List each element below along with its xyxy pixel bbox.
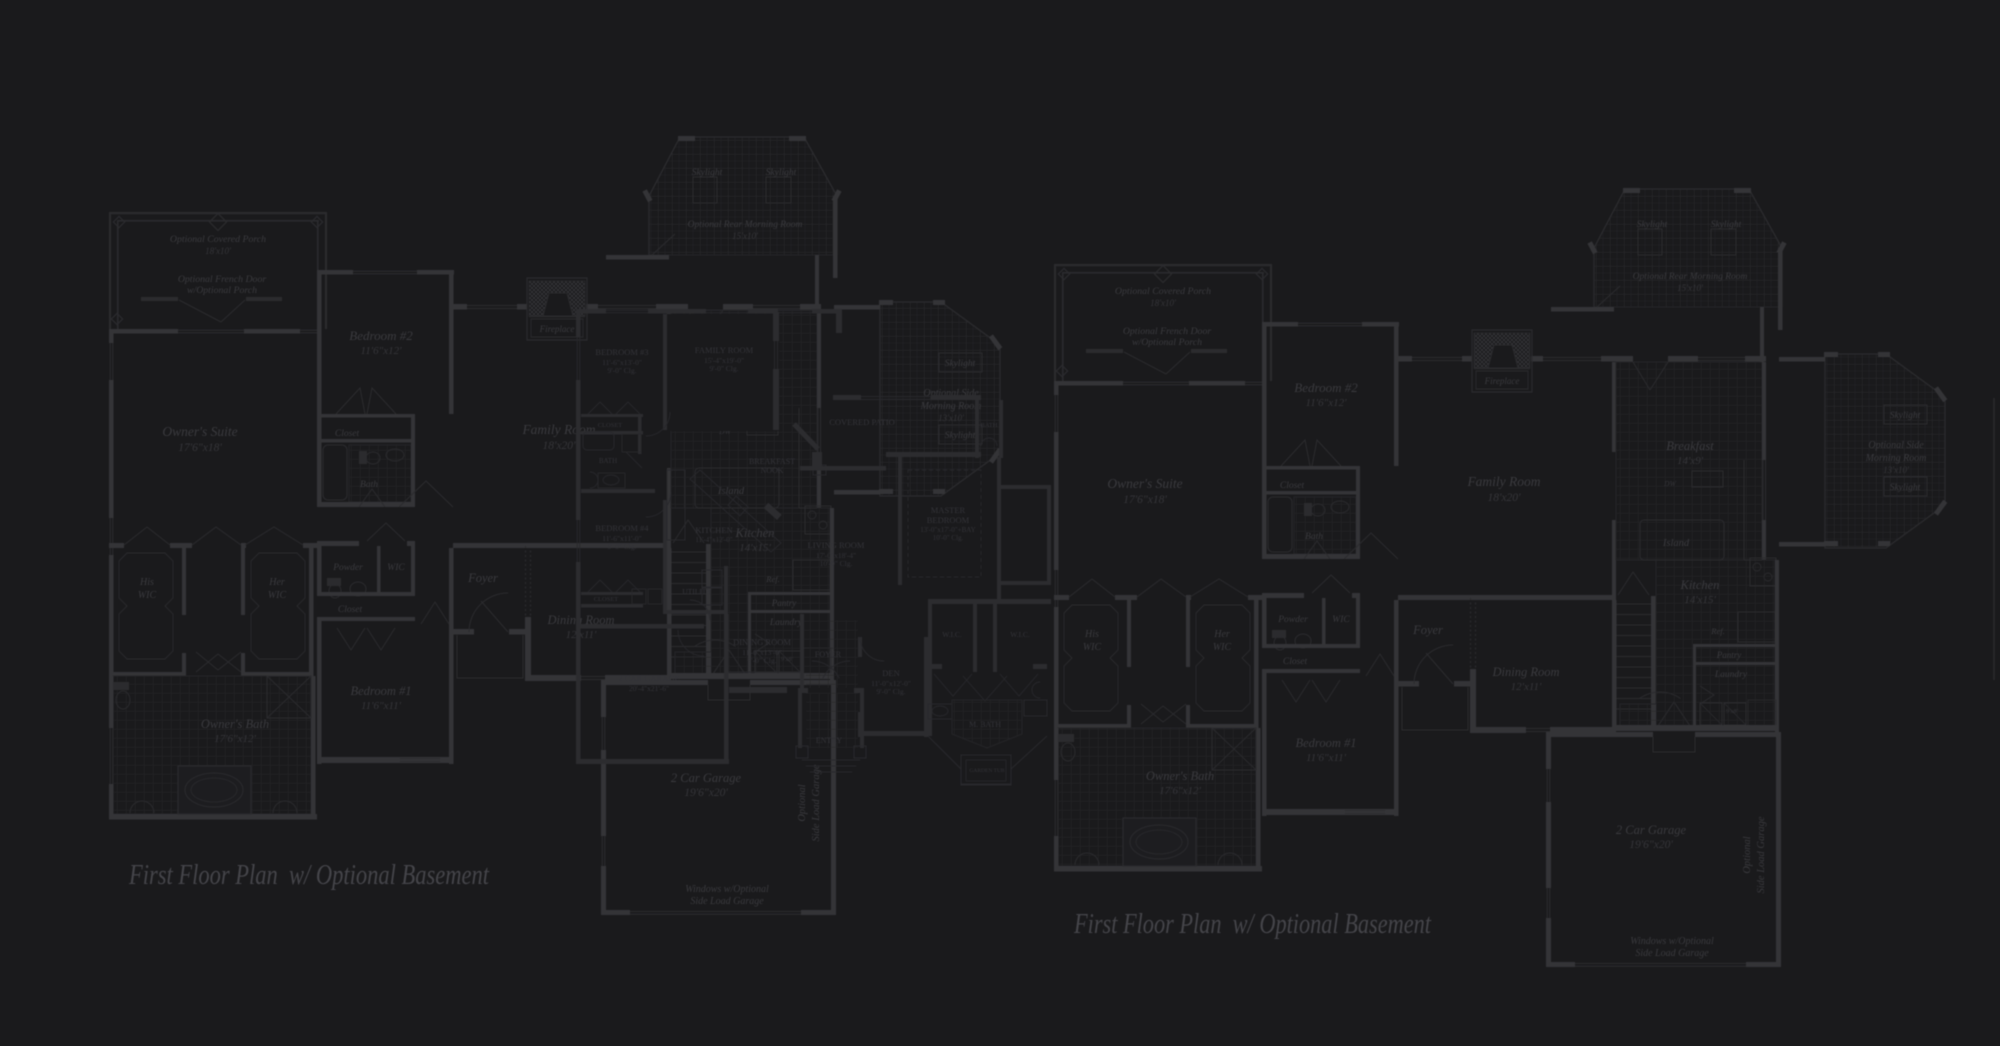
svg-text:Laundry: Laundry bbox=[769, 618, 803, 628]
svg-text:Laundry: Laundry bbox=[1714, 670, 1748, 680]
svg-text:WIC: WIC bbox=[268, 590, 287, 601]
svg-text:GARDEN TUB: GARDEN TUB bbox=[969, 768, 1005, 774]
svg-text:11'6"x11': 11'6"x11' bbox=[361, 700, 402, 712]
svg-text:DEN: DEN bbox=[882, 668, 899, 678]
svg-text:ENTRY: ENTRY bbox=[816, 736, 842, 745]
svg-text:BEDROOM: BEDROOM bbox=[927, 515, 970, 525]
svg-text:w/Optional Porch: w/Optional Porch bbox=[187, 285, 257, 296]
svg-text:19'6"x20': 19'6"x20' bbox=[1629, 839, 1673, 851]
svg-text:2 Car Garage: 2 Car Garage bbox=[671, 771, 742, 785]
svg-text:Pantry: Pantry bbox=[1716, 650, 1742, 660]
svg-text:Optional Side: Optional Side bbox=[1868, 440, 1924, 451]
svg-text:Optional French Door: Optional French Door bbox=[178, 274, 267, 285]
svg-text:WIC: WIC bbox=[387, 563, 405, 573]
svg-text:Optional Covered Porch: Optional Covered Porch bbox=[1115, 286, 1211, 297]
svg-text:9'-0" Clg.: 9'-0" Clg. bbox=[710, 364, 739, 373]
svg-text:13'x10': 13'x10' bbox=[938, 413, 965, 423]
svg-text:Owner's Suite: Owner's Suite bbox=[1107, 476, 1182, 491]
svg-text:Powder: Powder bbox=[332, 563, 363, 573]
svg-text:Skylight: Skylight bbox=[945, 431, 976, 441]
svg-text:10'-0" Clg.: 10'-0" Clg. bbox=[933, 534, 964, 542]
svg-text:BEDROOM #4: BEDROOM #4 bbox=[595, 523, 649, 533]
svg-text:Ref.: Ref. bbox=[765, 574, 779, 584]
svg-text:Her: Her bbox=[1213, 629, 1230, 640]
svg-text:w/Optional Porch: w/Optional Porch bbox=[1132, 337, 1202, 348]
svg-text:12'x11': 12'x11' bbox=[566, 629, 597, 641]
svg-text:Fireplace: Fireplace bbox=[539, 324, 575, 334]
svg-text:FAMILY ROOM: FAMILY ROOM bbox=[695, 345, 754, 355]
svg-text:18'x10': 18'x10' bbox=[205, 246, 232, 256]
svg-text:Foyer: Foyer bbox=[467, 571, 498, 585]
svg-text:Side Load Garage: Side Load Garage bbox=[811, 764, 822, 841]
svg-text:W.I.C.: W.I.C. bbox=[1010, 630, 1030, 639]
svg-text:KITCHEN: KITCHEN bbox=[695, 525, 732, 535]
svg-text:Skylight: Skylight bbox=[1890, 483, 1921, 493]
svg-text:Skylight: Skylight bbox=[692, 168, 723, 178]
svg-text:Bath: Bath bbox=[360, 480, 378, 490]
svg-text:Optional: Optional bbox=[1742, 836, 1753, 873]
svg-text:Closet: Closet bbox=[1280, 481, 1305, 491]
svg-text:14'x9': 14'x9' bbox=[1677, 455, 1704, 467]
svg-text:Side Load Garage: Side Load Garage bbox=[690, 896, 764, 907]
svg-text:DW: DW bbox=[1663, 479, 1676, 488]
svg-text:2 Car Garage: 2 Car Garage bbox=[1616, 823, 1687, 837]
svg-text:15'x10': 15'x10' bbox=[1677, 283, 1704, 293]
svg-text:17'6"x18': 17'6"x18' bbox=[178, 442, 222, 454]
svg-text:Bedroom #2: Bedroom #2 bbox=[349, 328, 413, 343]
svg-text:11'6"x12': 11'6"x12' bbox=[361, 345, 403, 357]
svg-text:CLOSET: CLOSET bbox=[598, 422, 623, 429]
svg-text:WIC: WIC bbox=[1332, 615, 1350, 625]
svg-text:17'6"x12': 17'6"x12' bbox=[214, 733, 256, 745]
svg-text:BEDROOM #3: BEDROOM #3 bbox=[595, 347, 648, 357]
svg-text:Optional Covered Porch: Optional Covered Porch bbox=[170, 234, 266, 245]
svg-text:Island: Island bbox=[1662, 538, 1690, 549]
svg-text:Breakfast: Breakfast bbox=[1666, 439, 1714, 453]
svg-text:Owner's Bath: Owner's Bath bbox=[201, 717, 269, 731]
svg-text:Closet: Closet bbox=[338, 605, 363, 615]
svg-text:WIC: WIC bbox=[1083, 642, 1102, 653]
svg-text:9'-0" Clg.: 9'-0" Clg. bbox=[748, 656, 777, 665]
svg-text:12'x11': 12'x11' bbox=[1511, 681, 1542, 693]
svg-text:BREAKFAST: BREAKFAST bbox=[749, 457, 795, 466]
svg-text:9'x8': 9'x8' bbox=[1726, 708, 1739, 715]
svg-text:14'x15': 14'x15' bbox=[1684, 594, 1716, 606]
svg-text:Her: Her bbox=[268, 577, 285, 588]
svg-text:Optional Rear Morning Room: Optional Rear Morning Room bbox=[688, 220, 803, 230]
svg-text:First Floor Plan w/ Optional: First Floor Plan w/ Optional Basement bbox=[128, 859, 489, 891]
svg-text:9'-0" Clg.: 9'-0" Clg. bbox=[877, 687, 906, 696]
svg-text:Closet: Closet bbox=[335, 429, 360, 439]
svg-text:CLOSET: CLOSET bbox=[594, 596, 619, 603]
svg-text:Owner's Bath: Owner's Bath bbox=[1146, 769, 1214, 783]
svg-text:9'-0" Clg.: 9'-0" Clg. bbox=[608, 542, 637, 551]
svg-text:Skylight: Skylight bbox=[766, 168, 797, 178]
svg-text:Family Room: Family Room bbox=[521, 422, 595, 437]
svg-text:17'6"x18': 17'6"x18' bbox=[1123, 494, 1167, 506]
svg-text:Morning Room: Morning Room bbox=[1865, 453, 1927, 464]
svg-text:Bath: Bath bbox=[1305, 532, 1323, 542]
svg-text:DINING ROOM: DINING ROOM bbox=[733, 637, 791, 647]
svg-text:Dining Room: Dining Room bbox=[1491, 665, 1559, 679]
svg-text:Windows w/Optional: Windows w/Optional bbox=[685, 884, 769, 895]
svg-text:BATH: BATH bbox=[599, 457, 617, 465]
svg-text:15'x10': 15'x10' bbox=[732, 231, 759, 241]
svg-text:His: His bbox=[139, 577, 154, 588]
svg-text:Powder: Powder bbox=[1277, 615, 1308, 625]
svg-text:2 CAR GARAGE: 2 CAR GARAGE bbox=[618, 673, 679, 683]
svg-text:Skylight: Skylight bbox=[1711, 220, 1742, 230]
svg-text:Foyer: Foyer bbox=[1412, 623, 1443, 637]
svg-text:11'6"x12': 11'6"x12' bbox=[1306, 397, 1348, 409]
svg-text:Fireplace: Fireplace bbox=[1484, 376, 1520, 386]
svg-text:17'6"x12': 17'6"x12' bbox=[1159, 785, 1201, 797]
svg-text:Side Load Garage: Side Load Garage bbox=[1635, 948, 1709, 959]
svg-text:FOYER: FOYER bbox=[815, 650, 842, 659]
svg-text:Morning Room: Morning Room bbox=[920, 401, 982, 412]
svg-text:18'x20': 18'x20' bbox=[542, 440, 576, 452]
svg-text:Bedroom #2: Bedroom #2 bbox=[1294, 380, 1358, 395]
svg-text:His: His bbox=[1084, 629, 1099, 640]
svg-text:19'6"x20': 19'6"x20' bbox=[684, 787, 728, 799]
svg-text:First Floor Plan w/ Optional: First Floor Plan w/ Optional Basement bbox=[1073, 908, 1431, 940]
svg-text:Bedroom #1: Bedroom #1 bbox=[351, 684, 412, 698]
svg-text:Island: Island bbox=[717, 486, 745, 497]
svg-text:LIVING ROOM: LIVING ROOM bbox=[808, 540, 865, 550]
svg-text:Bedroom #1: Bedroom #1 bbox=[1296, 736, 1357, 750]
svg-text:9'x8': 9'x8' bbox=[781, 656, 794, 663]
svg-text:COVERED PATIO: COVERED PATIO bbox=[829, 417, 895, 427]
svg-text:Owner's Suite: Owner's Suite bbox=[162, 424, 237, 439]
svg-text:18'x20': 18'x20' bbox=[1487, 492, 1521, 504]
svg-text:NOOK: NOOK bbox=[760, 466, 783, 475]
svg-text:Kitchen: Kitchen bbox=[735, 526, 775, 540]
svg-text:Pantry: Pantry bbox=[771, 598, 797, 608]
svg-text:Optional: Optional bbox=[797, 784, 808, 821]
svg-text:11'-4"x12'-0": 11'-4"x12'-0" bbox=[695, 536, 732, 544]
svg-text:Optional French Door: Optional French Door bbox=[1123, 326, 1212, 337]
svg-text:Optional Rear Morning Room: Optional Rear Morning Room bbox=[1633, 272, 1748, 282]
svg-text:20'-4"x21'-6": 20'-4"x21'-6" bbox=[629, 684, 669, 693]
svg-text:Skylight: Skylight bbox=[1637, 220, 1668, 230]
svg-text:BATH: BATH bbox=[981, 422, 998, 429]
svg-text:Windows w/Optional: Windows w/Optional bbox=[1630, 936, 1714, 947]
svg-text:13'x10': 13'x10' bbox=[1883, 465, 1910, 475]
svg-text:13'-0"x17'-0"+BAY: 13'-0"x17'-0"+BAY bbox=[920, 526, 975, 534]
svg-text:Side Load Garage: Side Load Garage bbox=[1756, 816, 1767, 893]
svg-text:11'6"x11': 11'6"x11' bbox=[1306, 752, 1347, 764]
svg-text:Family Room: Family Room bbox=[1466, 474, 1540, 489]
svg-text:Kitchen: Kitchen bbox=[1680, 578, 1720, 592]
svg-text:Closet: Closet bbox=[1283, 657, 1308, 667]
svg-text:MASTER: MASTER bbox=[931, 505, 966, 515]
svg-text:WIC: WIC bbox=[1213, 642, 1232, 653]
svg-text:10'-0" Clg.: 10'-0" Clg. bbox=[820, 559, 853, 568]
svg-text:18'x10': 18'x10' bbox=[1150, 298, 1177, 308]
svg-text:Ref.: Ref. bbox=[1710, 626, 1724, 636]
svg-text:9'-0" Clg.: 9'-0" Clg. bbox=[608, 366, 637, 375]
svg-text:Skylight: Skylight bbox=[945, 359, 976, 369]
svg-text:W.I.C.: W.I.C. bbox=[942, 630, 962, 639]
svg-text:WIC: WIC bbox=[138, 590, 157, 601]
svg-text:Skylight: Skylight bbox=[1890, 411, 1921, 421]
